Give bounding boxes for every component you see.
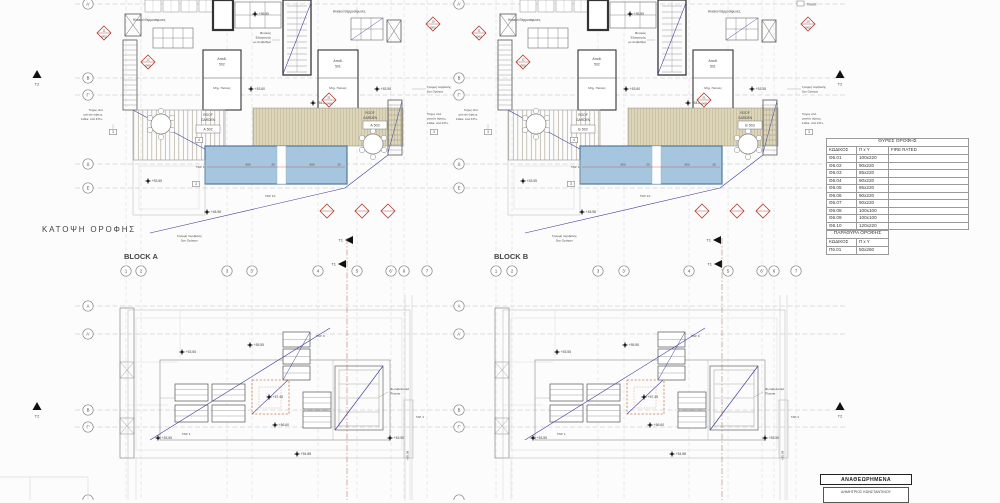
grid-bubble: 3'	[619, 266, 629, 276]
svg-text:10: 10	[431, 20, 435, 24]
section-marker-t2: T2	[33, 70, 42, 87]
schedule-row: Θ6.01100x220	[827, 155, 969, 163]
svg-text:110εκ. από F.P.L.: 110εκ. από F.P.L.	[427, 121, 449, 125]
svg-text:3: 3	[195, 182, 197, 186]
grid-bubble-label: Β	[87, 76, 90, 81]
wall-note: Τοίχος από μπετόν όψεως, 110εκ. από F.P.…	[81, 108, 103, 121]
svg-text:Γραμμή περιβολής: Γραμμή περιβολής	[427, 85, 451, 89]
section-marker-t1: T1	[331, 260, 346, 268]
svg-text:20: 20	[337, 163, 341, 167]
grid-bubble: 5	[723, 266, 733, 276]
svg-text:ROOF: ROOF	[203, 113, 213, 117]
col-header-code: ΚΩΔΙΚΟΣ	[827, 239, 857, 247]
svg-text:μπετόν όψεως,: μπετόν όψεως,	[427, 117, 447, 121]
schedule-cell-empty	[889, 192, 969, 200]
grid-bubble: 4	[313, 266, 323, 276]
upper-roof-plan-block-b	[495, 295, 799, 500]
schedule-cell: Θ6.01	[827, 155, 857, 163]
schedule-cell: 90x220	[857, 177, 889, 185]
revision-block: ΑΝΑΘΕΩΡΗΜΕΝΑ ΔΗΜΗΤΡΙΟΣ ΚΩΝΣΤΑΝΤΙΝΟΥ	[820, 474, 912, 503]
level-marker: +54.88	[294, 451, 311, 457]
block-b-label: BLOCK B	[494, 252, 529, 261]
grid-bubble: 3	[222, 266, 232, 276]
grid-bubble-label: Γ'	[457, 425, 460, 430]
svg-text:Τοίχος από: Τοίχος από	[89, 108, 104, 112]
grid-bubble-label: 3'	[622, 269, 625, 274]
svg-text:500: 500	[245, 163, 250, 167]
stair-left	[123, 40, 137, 110]
svg-text:Θ08: Θ08	[326, 102, 332, 106]
schedule-cell: 100x100	[857, 207, 889, 215]
section-diamond	[320, 204, 395, 218]
grid-bubble: Β	[454, 405, 464, 415]
svg-text:T1: T1	[331, 262, 336, 267]
svg-text:T2: T2	[838, 414, 843, 419]
svg-text:+53.55: +53.55	[186, 350, 197, 354]
svg-text:T1: T1	[338, 238, 343, 243]
schedule-row: Θ6.0585x220	[827, 185, 969, 193]
svg-text:T1: T1	[707, 262, 712, 267]
schedule-cell: 120x220	[857, 222, 889, 230]
revision-title: ΑΝΑΘΕΩΡΗΜΕΝΑ	[820, 474, 912, 485]
grid-bubble-label: Β	[87, 408, 90, 413]
grid-bubble: Α	[454, 301, 464, 311]
section-marker-t1: T1	[706, 236, 721, 244]
section-marker-t1: T1	[707, 260, 722, 268]
schedule-cell: Θ6.06	[827, 192, 857, 200]
svg-text:Α 503: Α 503	[370, 124, 379, 128]
right-strip	[404, 295, 413, 500]
svg-text:Β 502: Β 502	[578, 128, 587, 132]
section-diamond: 10 Θ02	[426, 17, 440, 31]
level-marker: +53.55	[374, 86, 391, 92]
door-schedule-table: ΘΥΡΕΣ ΟΡΟΦΗΣ ΚΩΔΙΚΟΣ Π x Υ FIRE RATED Θ6…	[826, 138, 969, 230]
grid-bubble-label: Β	[458, 408, 461, 413]
schedule-cell-empty	[889, 215, 969, 223]
svg-text:3: 3	[433, 130, 435, 134]
grid-bubble-label: Β	[458, 76, 461, 81]
svg-text:+53.60: +53.60	[255, 87, 266, 91]
grid-bubble-label: Ε	[458, 186, 461, 191]
tar-label: ΤΑΡ. 3	[416, 415, 424, 419]
skylight-stack	[283, 332, 310, 380]
grid-bubble: 1	[121, 266, 131, 276]
svg-text:+53.55: +53.55	[381, 87, 392, 91]
block-a-label: BLOCK A	[124, 252, 158, 261]
svg-text:Εξαερισμός: Εξαερισμός	[256, 36, 272, 40]
grid-bubble: Α'	[454, 329, 464, 339]
svg-text:+53.55: +53.55	[152, 179, 163, 183]
schedule-row: Θ6.0790x220	[827, 200, 969, 208]
room-tag: Α 502	[196, 125, 220, 133]
grid-bubble: Α'	[83, 329, 93, 339]
svg-text:5ου Ορόφου: 5ου Ορόφου	[181, 239, 198, 243]
schedule-cell: 90x220	[857, 200, 889, 208]
grid-bubble-label: Α'	[457, 2, 461, 7]
svg-text:+48.98: +48.98	[211, 210, 222, 214]
grid-bubble-label: Α'	[457, 332, 461, 337]
grid-bubble: Ε	[454, 183, 464, 193]
col-header-size: Π x Υ	[857, 147, 889, 155]
grid-bubble: Γ'	[83, 90, 93, 100]
wall-strip	[120, 308, 134, 458]
pool: 500 20 500 20	[205, 146, 347, 184]
outline-note: Γραμμή περιβολής 5ου Ορόφου	[177, 234, 202, 243]
room-storage-502: Αποθ. 502 Μηχ. Πισίνας	[203, 50, 241, 110]
svg-text:Αποθ.: Αποθ.	[217, 57, 226, 61]
schedule-cell: Θ6.04	[827, 177, 857, 185]
grid-bubble-label: 6'	[389, 269, 392, 274]
schedule-row: Π6.0150x260	[827, 247, 889, 255]
svg-text:+56.60: +56.60	[279, 423, 290, 427]
schedule-cell: Θ6.07	[827, 200, 857, 208]
schedule-cell-empty	[889, 162, 969, 170]
svg-text:Θ02: Θ02	[430, 26, 436, 30]
col-header-code: ΚΩΔΙΚΟΣ	[827, 147, 857, 155]
revision-name: ΔΗΜΗΤΡΙΟΣ ΚΩΝΣΤΑΝΤΙΝΟΥ	[823, 487, 909, 503]
room-tag: Α 503	[363, 121, 387, 129]
svg-text:Αποθ.: Αποθ.	[333, 59, 342, 63]
section-marker-t2: T2	[33, 402, 42, 419]
solar-heaters-label: Ηλιακοί Θερμοσίφωνες	[133, 18, 166, 22]
grid-bubble: 3	[593, 266, 603, 276]
grid-bubble: 5	[352, 266, 362, 276]
floor-outline	[128, 310, 410, 500]
grid-bubble: 6	[399, 266, 409, 276]
outline-note: Γραμμή περιβολής 5ου Ορόφου	[412, 85, 451, 94]
svg-text:μπετόν όψεως,: μπετόν όψεως,	[84, 113, 104, 117]
keynote-3: 3	[193, 181, 200, 186]
grid-bubble: 6'	[757, 266, 767, 276]
schedule-cell: Θ6.09	[827, 215, 857, 223]
heater-grid	[351, 18, 383, 40]
grid-bubble: Β	[83, 405, 93, 415]
svg-text:12: 12	[146, 58, 150, 62]
svg-text:501: 501	[335, 65, 341, 69]
level-rotated: +55.08	[406, 450, 410, 460]
wall-note: Τοίχος από μπετόν όψεως, 110εκ. από F.P.…	[427, 112, 449, 125]
window-schedule-title: ΠΑΡΑΘΥΡΑ ΟΡΟΦΗΣ	[827, 231, 889, 239]
stair-core	[283, 0, 311, 75]
svg-text:Β 503: Β 503	[745, 124, 754, 128]
svg-text:502: 502	[219, 63, 225, 67]
grid-bubble-label: Α	[87, 304, 90, 309]
svg-text:Α 502: Α 502	[203, 128, 212, 132]
schedule-cell-empty	[889, 155, 969, 163]
grid-bubble: 6'	[386, 266, 396, 276]
solar-heater-row	[145, 0, 213, 12]
schedule-cell: 90x220	[857, 192, 889, 200]
grid-bubble-label: 6'	[760, 269, 763, 274]
svg-text:+55.55: +55.55	[259, 12, 270, 16]
grid-bubble-label: 3'	[250, 269, 253, 274]
grid-bubble-label: Α'	[86, 332, 90, 337]
schedule-cell: Θ6.08	[827, 207, 857, 215]
level-marker: +57.45	[266, 394, 283, 400]
schedule-row: Θ6.08100x100	[827, 207, 969, 215]
schedule-row: Θ6.10120x220	[827, 222, 969, 230]
schedule-row: Θ6.0490x220	[827, 177, 969, 185]
schedule-cell-empty	[889, 222, 969, 230]
corner-fragment	[0, 477, 88, 500]
svg-text:με Αναβαθμό: με Αναβαθμό	[254, 40, 272, 44]
keynote-3: 3	[110, 124, 117, 134]
level-marker: +53.55	[179, 349, 196, 355]
room-tag: Β 503	[738, 121, 762, 129]
col-header-fire: FIRE RATED	[889, 147, 969, 155]
section-marker-t1: T1	[338, 236, 353, 244]
svg-text:T2: T2	[838, 82, 843, 87]
terrace-outline	[133, 160, 205, 215]
schedule-cell: 85x220	[857, 185, 889, 193]
svg-text:Μηχ. Πισίνας: Μηχ. Πισίνας	[213, 86, 231, 90]
svg-text:T1: T1	[706, 238, 711, 243]
level-marker: +48.98	[204, 209, 221, 215]
solar-heaters-label: Ηλιακοί Θερμοσίφωνες	[333, 10, 366, 14]
schedule-cell-empty	[889, 207, 969, 215]
svg-text:T2: T2	[35, 82, 40, 87]
svg-text:Θ05: Θ05	[145, 64, 151, 68]
svg-text:21: 21	[327, 96, 331, 100]
svg-text:Γραμμή περιβολής: Γραμμή περιβολής	[177, 234, 202, 238]
grid-bubble: 6	[769, 266, 779, 276]
grid-bubble: Α	[83, 301, 93, 311]
grid-bubble: Γ'	[454, 422, 464, 432]
grid-bubble: 1	[491, 266, 501, 276]
svg-text:20: 20	[271, 163, 275, 167]
grid-bubble: 3'	[247, 266, 257, 276]
heater-grid	[153, 28, 193, 48]
level-marker: +55.55	[247, 342, 264, 348]
schedule-row: Θ6.0290x220	[827, 162, 969, 170]
svg-text:+54.88: +54.88	[301, 452, 312, 456]
schedule-cell: Π6.01	[827, 247, 857, 255]
grid-bubble-cut	[454, 495, 464, 500]
grid-bubble-label: Δ	[458, 162, 461, 167]
grid-bubble-label: Δ	[87, 162, 90, 167]
pounti-note: Πουντί	[797, 1, 817, 7]
svg-text:3: 3	[112, 130, 114, 134]
svg-text:Φωτοβολταϊκά: Φωτοβολταϊκά	[390, 387, 409, 391]
grid-bubble: 7	[422, 266, 432, 276]
svg-text:+53.55: +53.55	[162, 436, 173, 440]
grid-bubble: Β	[83, 73, 93, 83]
pv-panel	[335, 366, 383, 430]
grid-bubble-label: Γ'	[86, 425, 89, 430]
grid-bubble: Δ	[83, 159, 93, 169]
schedule-cell: Θ6.05	[827, 185, 857, 193]
schedule-cell: Θ6.10	[827, 222, 857, 230]
svg-text:T2: T2	[35, 414, 40, 419]
schedule-cell: 100x220	[857, 155, 889, 163]
svg-text:Πλαίσια: Πλαίσια	[390, 392, 401, 396]
svg-text:Μηχ. Πισίνας: Μηχ. Πισίνας	[329, 86, 347, 90]
core-wall	[213, 0, 233, 30]
door-schedule-title: ΘΥΡΕΣ ΟΡΟΦΗΣ	[827, 139, 969, 147]
schedule-cell-empty	[889, 185, 969, 193]
grid-bubble-label: Α	[458, 304, 461, 309]
schedule-cell: 85x220	[857, 170, 889, 178]
grid-bubble: 7	[791, 266, 801, 276]
schedule-cell: Θ6.03	[827, 170, 857, 178]
door-window-schedules: ΘΥΡΕΣ ΟΡΟΦΗΣ ΚΩΔΙΚΟΣ Π x Υ FIRE RATED Θ6…	[826, 138, 973, 255]
schedule-row: Θ6.09100x100	[827, 215, 969, 223]
svg-text:Φυσικός: Φυσικός	[260, 31, 272, 35]
svg-text:Θ02: Θ02	[101, 35, 107, 39]
grid-bubble: 2	[507, 266, 517, 276]
grid-bubble: Γ'	[83, 422, 93, 432]
keynote-3: 3	[431, 129, 438, 134]
svg-text:110εκ. από F.P.L.: 110εκ. από F.P.L.	[81, 117, 103, 121]
keynote-4: 4	[196, 137, 203, 142]
svg-text:11: 11	[102, 29, 105, 33]
grid-bubble: Β	[454, 73, 464, 83]
svg-text:GARDEN: GARDEN	[201, 118, 216, 122]
tar-label: ΤΑΡ. 10	[265, 194, 276, 198]
grid-bubble: 2	[136, 266, 146, 276]
section-diamond: 11 Θ02	[97, 26, 111, 40]
svg-text:4: 4	[198, 138, 200, 142]
svg-text:GARDEN: GARDEN	[363, 116, 378, 120]
svg-text:+55.55: +55.55	[254, 343, 265, 347]
schedule-cell: 90x220	[857, 162, 889, 170]
tar-label: ΤΑΡ. 9	[316, 334, 325, 338]
grid-bubble: Α'	[83, 0, 93, 9]
drawing-title: ΚΑΤΟΨΗ ΟΡΟΦΗΣ	[42, 225, 136, 234]
svg-text:5ου Ορόφου: 5ου Ορόφου	[427, 90, 444, 94]
shaft-x-box	[387, 20, 401, 42]
level-marker: +53.55	[145, 178, 162, 184]
grid-bubble: Ε	[83, 183, 93, 193]
grid-bubble-label: Ε	[87, 186, 90, 191]
grid-bubble: Γ'	[454, 90, 464, 100]
grid-bubble: Δ	[454, 159, 464, 169]
grid-bubble: 4	[684, 266, 694, 276]
svg-text:500: 500	[309, 163, 314, 167]
svg-text:ROOF: ROOF	[365, 111, 375, 115]
schedule-cell-empty	[889, 177, 969, 185]
svg-text:Πουντί: Πουντί	[807, 3, 817, 7]
grid-bubble-label: Α'	[86, 2, 90, 7]
upper-roof-plan-block: Φωτοβολταϊκά Πλαίσια +53.55 +55.55 +57.4…	[120, 295, 424, 500]
svg-text:+53.55: +53.55	[394, 436, 405, 440]
svg-text:Τοίχος από: Τοίχος από	[427, 112, 442, 116]
svg-text:+57.45: +57.45	[273, 395, 284, 399]
tar-label: ΤΑΡ. 1	[182, 432, 191, 436]
col-header-size: Π x Υ	[857, 239, 889, 247]
vent-note: Φυσικός Εξαερισμός με Αναβαθμό	[254, 31, 280, 44]
roof-plan-block: Ηλιακοί Θερμοσίφωνες Ηλιακοί Θερμοσίφωνε…	[81, 0, 452, 243]
grid-bubble-label: Γ'	[86, 93, 89, 98]
schedule-cell: 50x260	[857, 247, 889, 255]
schedule-cell: 100x100	[857, 215, 889, 223]
grid-bubble-label: Γ'	[457, 93, 460, 98]
schedule-row: Θ6.0690x220	[827, 192, 969, 200]
schedule-row: Θ6.0385x220	[827, 170, 969, 178]
tar-label: ΤΑΡ. 1	[196, 165, 205, 169]
window-schedule-table: ΠΑΡΑΘΥΡΑ ΟΡΟΦΗΣ ΚΩΔΙΚΟΣ Π x Υ Π6.0150x26…	[826, 230, 889, 255]
schedule-cell-empty	[889, 170, 969, 178]
schedule-cell: Θ6.02	[827, 162, 857, 170]
roof-plan-block-b	[456, 0, 827, 243]
schedule-cell-empty	[889, 200, 969, 208]
level-marker: +53.60	[248, 86, 265, 92]
section-diamond: 12 Θ05	[141, 55, 155, 69]
grid-bubble: Α'	[454, 0, 464, 9]
room-tag: Β 502	[571, 125, 595, 133]
